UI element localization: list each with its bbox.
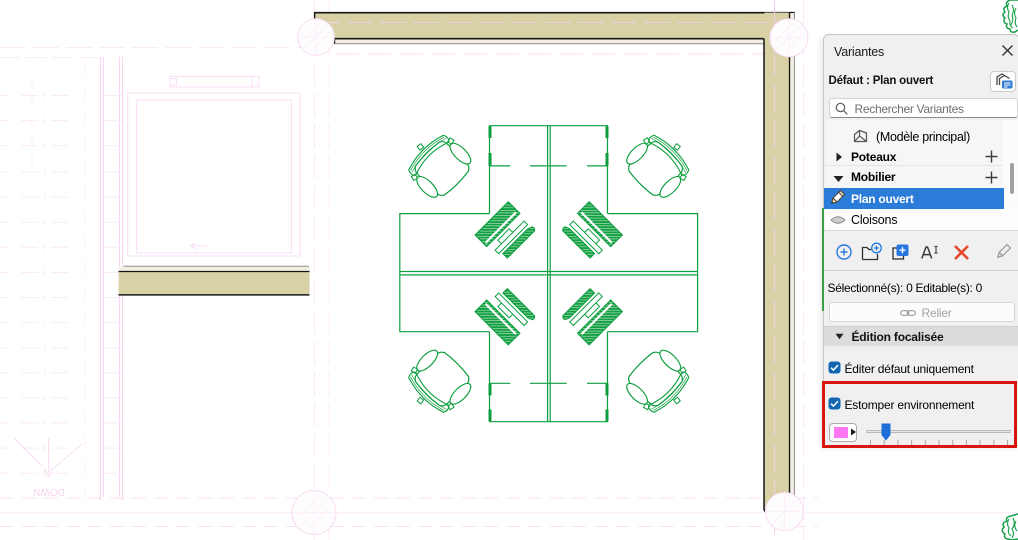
- svg-text:DOWN: DOWN: [33, 486, 65, 497]
